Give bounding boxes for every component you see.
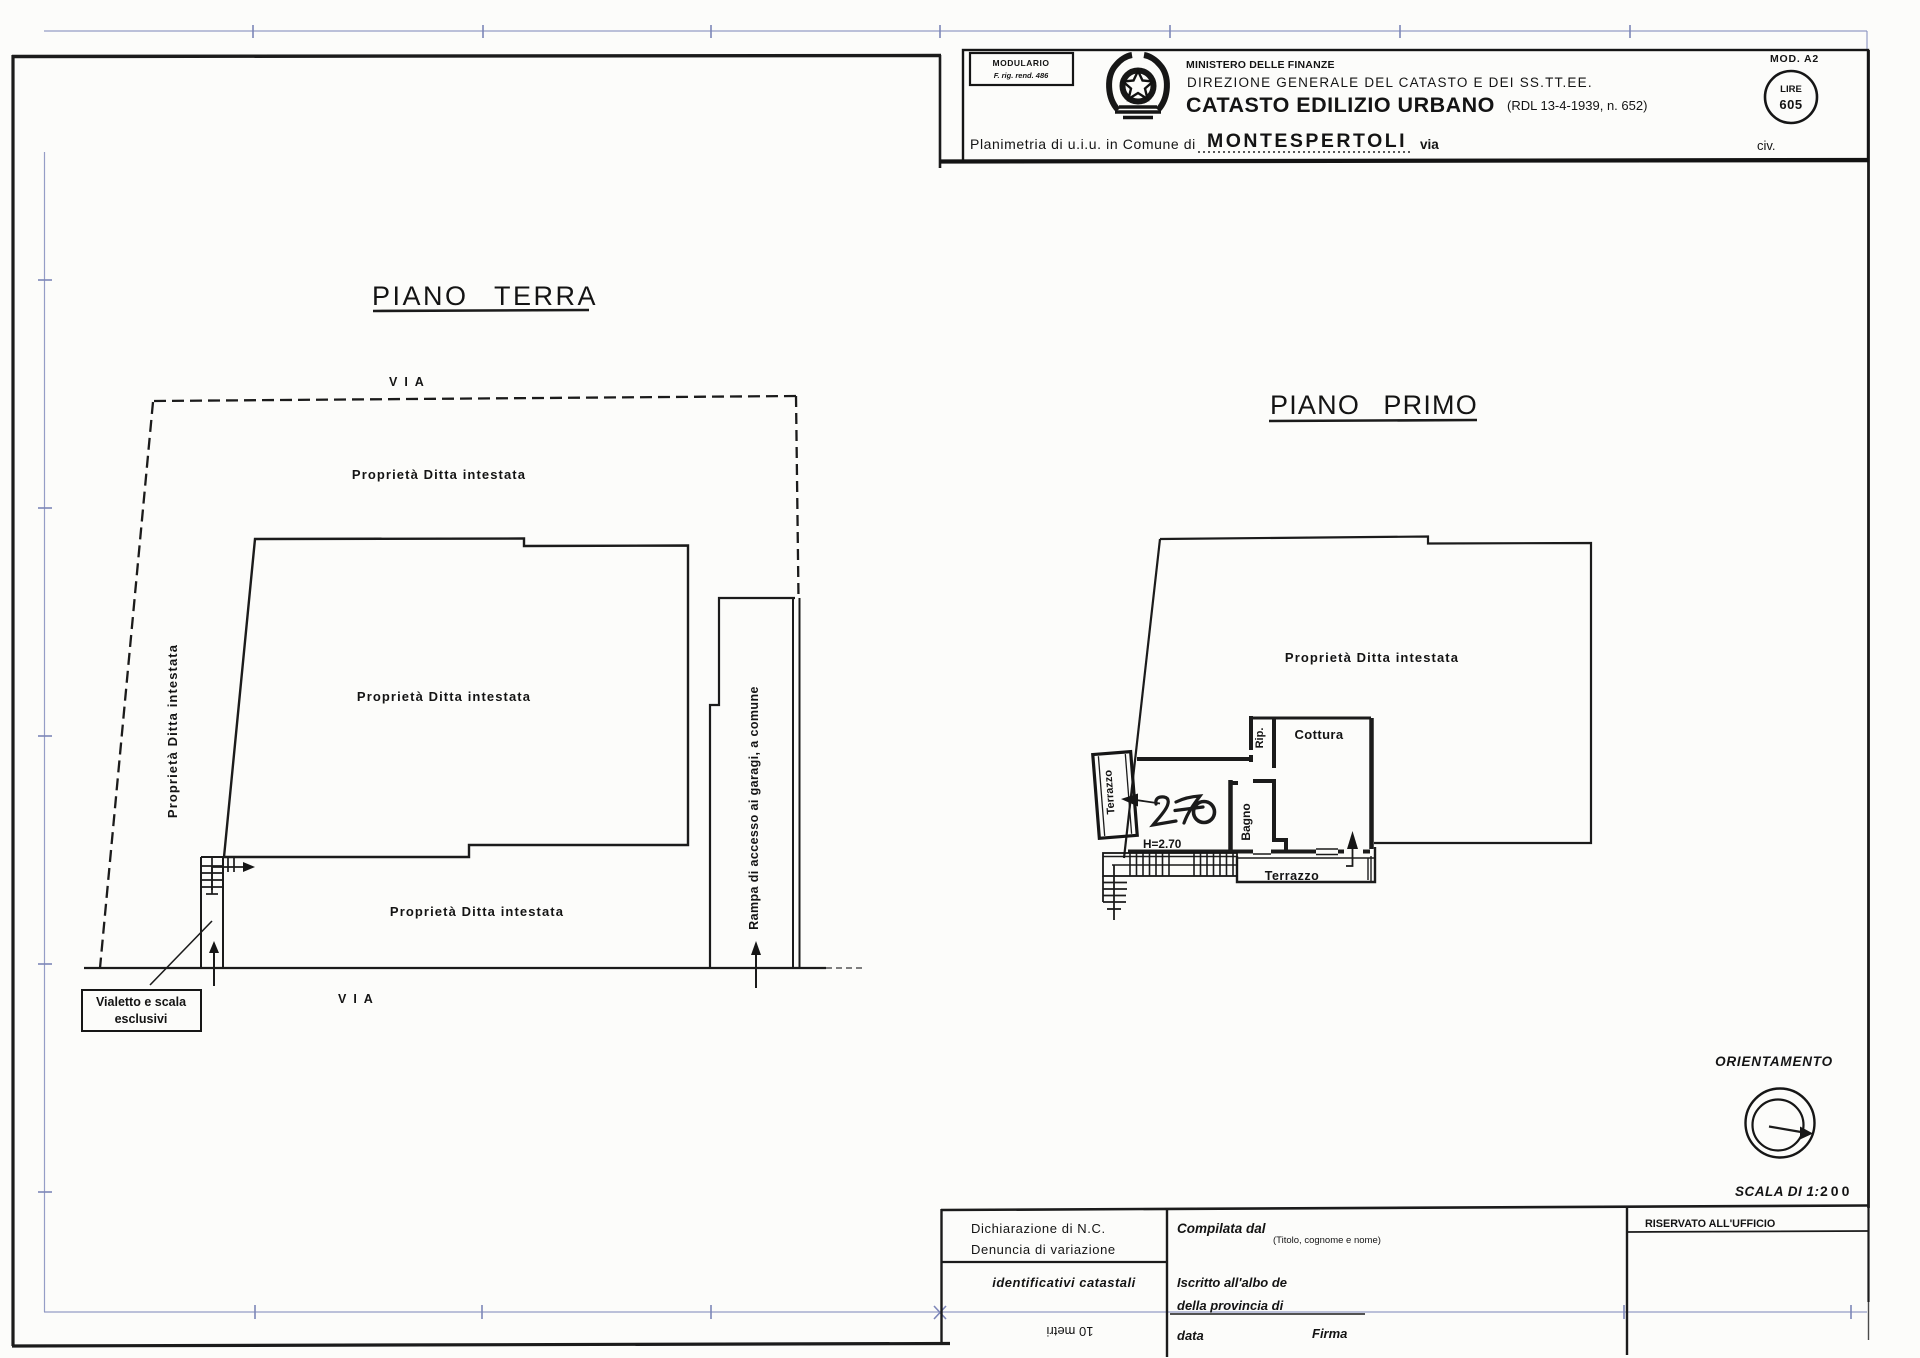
svg-text:MONTESPERTOLI: MONTESPERTOLI [1207, 130, 1407, 152]
svg-text:civ.: civ. [1757, 138, 1776, 153]
svg-text:esclusivi: esclusivi [115, 1012, 168, 1026]
svg-text:Rip.: Rip. [1254, 728, 1266, 749]
svg-text:(RDL 13-4-1939, n. 652): (RDL 13-4-1939, n. 652) [1507, 98, 1647, 113]
svg-text:Proprietà Ditta intestata: Proprietà Ditta intestata [390, 904, 564, 919]
svg-text:10 metri: 10 metri [1046, 1324, 1093, 1339]
svg-text:ORIENTAMENTO: ORIENTAMENTO [1715, 1054, 1833, 1069]
svg-text:Terrazzo: Terrazzo [1265, 869, 1319, 883]
svg-text:PIANO TERRA: PIANO TERRA [372, 281, 598, 311]
svg-text:PIANO PRIMO: PIANO PRIMO [1270, 390, 1478, 420]
svg-text:Proprietà Ditta intestata: Proprietà Ditta intestata [352, 467, 526, 482]
svg-text:Bagno: Bagno [1239, 803, 1253, 840]
svg-text:Firma: Firma [1312, 1326, 1347, 1341]
svg-text:RISERVATO ALL'UFFICIO: RISERVATO ALL'UFFICIO [1645, 1218, 1775, 1230]
svg-text:DIREZIONE GENERALE DEL CATASTO: DIREZIONE GENERALE DEL CATASTO E DEI SS.… [1187, 75, 1593, 90]
svg-text:VIA: VIA [389, 375, 431, 389]
svg-text:Terrazzo: Terrazzo [1102, 769, 1117, 814]
svg-text:Proprietà Ditta intestata: Proprietà Ditta intestata [165, 644, 180, 818]
svg-text:Vialetto e scala: Vialetto e scala [96, 995, 187, 1009]
svg-text:Dichiarazione di N.C.: Dichiarazione di N.C. [971, 1221, 1106, 1236]
svg-text:F. rig. rend. 486: F. rig. rend. 486 [994, 71, 1049, 80]
svg-text:MOD. A2: MOD. A2 [1770, 53, 1819, 65]
svg-text:H=2.70: H=2.70 [1143, 837, 1182, 851]
svg-text:Iscritto all'albo de: Iscritto all'albo de [1177, 1275, 1287, 1290]
svg-text:identificativi catastali: identificativi catastali [992, 1275, 1136, 1290]
svg-text:Compilata dal: Compilata dal [1177, 1221, 1266, 1236]
svg-text:Cottura: Cottura [1294, 727, 1343, 742]
svg-text:MINISTERO DELLE FINANZE: MINISTERO DELLE FINANZE [1186, 59, 1335, 71]
svg-text:LIRE: LIRE [1780, 84, 1802, 95]
svg-text:CATASTO EDILIZIO URBANO: CATASTO EDILIZIO URBANO [1186, 93, 1495, 117]
svg-text:Denuncia di variazione: Denuncia di variazione [971, 1242, 1116, 1257]
svg-text:MODULARIO: MODULARIO [993, 58, 1050, 68]
svg-text:Rampa di accesso ai garagi, a: Rampa di accesso ai garagi, a comune [747, 686, 761, 930]
svg-text:VIA: VIA [338, 992, 380, 1006]
svg-text:(Titolo, cognome e nome): (Titolo, cognome e nome) [1273, 1235, 1381, 1246]
svg-text:via: via [1420, 137, 1439, 152]
svg-text:SCALA DI 1:: SCALA DI 1: [1735, 1184, 1820, 1199]
svg-text:605: 605 [1779, 97, 1802, 112]
svg-text:della provincia di: della provincia di [1177, 1298, 1284, 1313]
svg-text:Planimetria di u.i.u. in Comun: Planimetria di u.i.u. in Comune di [970, 136, 1196, 152]
svg-text:Proprietà Ditta intestata: Proprietà Ditta intestata [357, 689, 531, 704]
svg-text:Proprietà Ditta intestata: Proprietà Ditta intestata [1285, 650, 1459, 665]
svg-text:200: 200 [1820, 1183, 1852, 1199]
svg-text:data: data [1177, 1328, 1204, 1343]
